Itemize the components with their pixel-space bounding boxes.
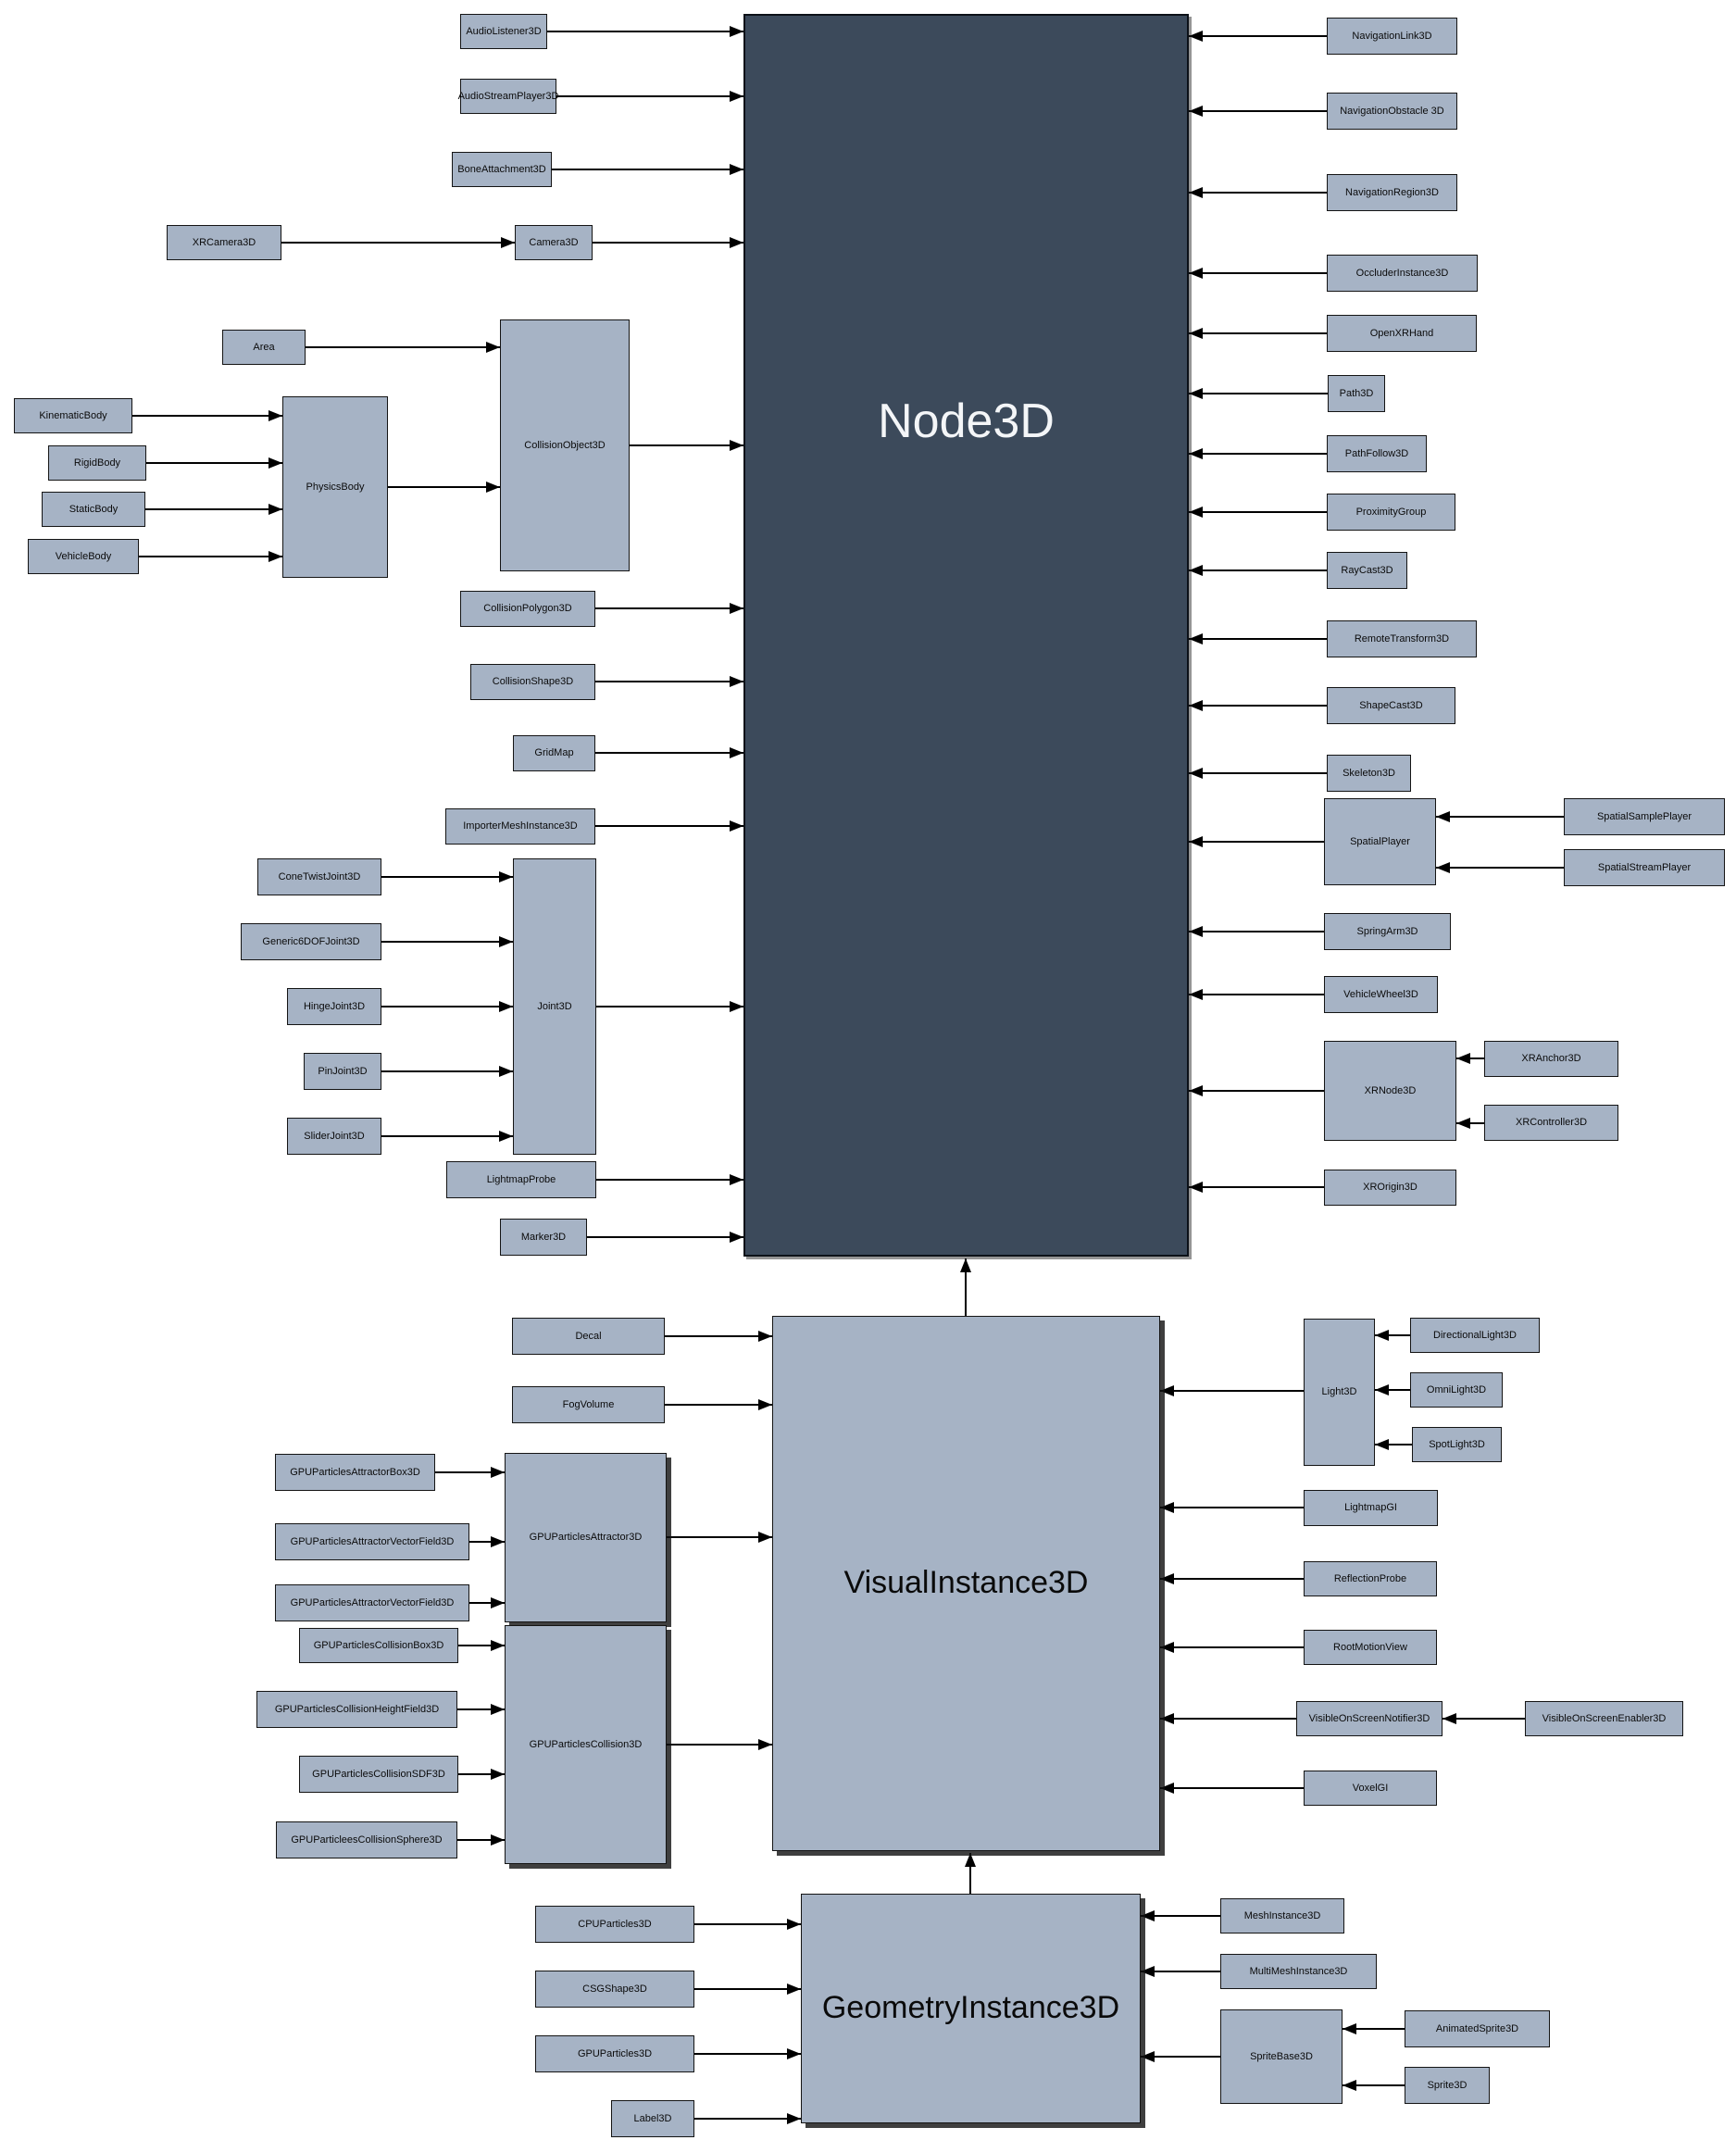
node-physics_body: PhysicsBody bbox=[282, 396, 388, 578]
edge-line bbox=[1160, 1787, 1304, 1789]
node-audio_listener3d: AudioListener3D bbox=[460, 14, 547, 49]
arrowhead-icon bbox=[499, 871, 513, 882]
node-directional_light3d: DirectionalLight3D bbox=[1410, 1318, 1540, 1353]
node-occluder_instance3d: OccluderInstance3D bbox=[1327, 255, 1478, 292]
node-cpu_particles3d: CPUParticles3D bbox=[535, 1906, 694, 1943]
arrowhead-icon bbox=[1189, 989, 1203, 1000]
node-omni_light3d: OmniLight3D bbox=[1410, 1372, 1503, 1408]
node-skeleton3d: Skeleton3D bbox=[1327, 755, 1411, 792]
arrowhead-icon bbox=[1436, 862, 1450, 873]
node-visible_on_screen_notifier3d: VisibleOnScreenNotifier3D bbox=[1296, 1701, 1443, 1736]
node-csg_shape3d: CSGShape3D bbox=[535, 1971, 694, 2008]
node-lightmap_gi: LightmapGI bbox=[1304, 1490, 1438, 1526]
node-root_motion_view: RootMotionView bbox=[1304, 1630, 1437, 1665]
node-sprite3d: Sprite3D bbox=[1405, 2067, 1490, 2104]
edge-line bbox=[596, 1179, 743, 1181]
node-xr_anchor3d: XRAnchor3D bbox=[1484, 1041, 1618, 1077]
arrowhead-icon bbox=[1141, 1966, 1155, 1977]
edge-line bbox=[281, 242, 515, 244]
edge-line bbox=[139, 556, 282, 557]
node-gpu_particles_attractor_vector_field3d_a: GPUParticlesAttractorVectorField3D bbox=[275, 1523, 469, 1560]
edge-line bbox=[556, 95, 743, 97]
node-path3d: Path3D bbox=[1328, 375, 1385, 412]
arrowhead-icon bbox=[1189, 1085, 1203, 1096]
node-audio_stream_player3d: AudioStreamPlayer3D bbox=[460, 79, 556, 114]
node-spatial_player: SpatialPlayer bbox=[1324, 798, 1436, 885]
node-gpu_particlees_collision_sphere3d: GPUParticleesCollisionSphere3D bbox=[276, 1821, 457, 1858]
arrowhead-icon bbox=[491, 1640, 505, 1651]
edge-line bbox=[388, 486, 500, 488]
node-pin_joint3d: PinJoint3D bbox=[304, 1053, 381, 1090]
arrowhead-icon bbox=[486, 342, 500, 353]
arrowhead-icon bbox=[1189, 633, 1203, 645]
node-kinematic_body: KinematicBody bbox=[14, 398, 132, 433]
edge-line bbox=[694, 2053, 801, 2055]
arrowhead-icon bbox=[499, 1001, 513, 1012]
arrowhead-icon bbox=[730, 26, 743, 37]
arrowhead-icon bbox=[730, 1001, 743, 1012]
edge-line bbox=[1160, 1578, 1304, 1580]
node-generic6dof_joint3d: Generic6DOFJoint3D bbox=[241, 923, 381, 960]
edge-line bbox=[1189, 393, 1328, 394]
edge-line bbox=[306, 346, 500, 348]
class-hierarchy-diagram: AudioListener3DAudioStreamPlayer3DBoneAt… bbox=[0, 0, 1736, 2140]
edge-line bbox=[1189, 1186, 1324, 1188]
arrowhead-icon bbox=[1160, 1783, 1174, 1794]
arrowhead-icon bbox=[730, 1174, 743, 1185]
edge-line bbox=[587, 1236, 743, 1238]
arrowhead-icon bbox=[1189, 448, 1203, 459]
edge-line bbox=[1189, 1090, 1324, 1092]
node-spatial_stream_player: SpatialStreamPlayer bbox=[1564, 849, 1725, 886]
edge-line bbox=[1189, 705, 1327, 707]
arrowhead-icon bbox=[730, 676, 743, 687]
edge-line bbox=[1189, 569, 1327, 571]
node-geometry_instance3d: GeometryInstance3D bbox=[801, 1894, 1141, 2123]
node-xr_camera3d: XRCamera3D bbox=[167, 225, 281, 260]
node-gpu_particles_attractor_vector_field3d_b: GPUParticlesAttractorVectorField3D bbox=[275, 1584, 469, 1621]
edge-line bbox=[1189, 841, 1324, 843]
edge-line bbox=[694, 2118, 801, 2120]
edge-line bbox=[1160, 1718, 1296, 1720]
arrowhead-icon bbox=[787, 2113, 801, 2124]
node-visible_on_screen_enabler3d: VisibleOnScreenEnabler3D bbox=[1525, 1701, 1683, 1736]
edge-line bbox=[145, 508, 282, 510]
node-proximity_group: ProximityGroup bbox=[1327, 494, 1455, 531]
arrowhead-icon bbox=[730, 1232, 743, 1243]
node-joint3d: Joint3D bbox=[513, 858, 596, 1155]
edge-line bbox=[381, 1006, 513, 1007]
node-light3d: Light3D bbox=[1304, 1319, 1375, 1466]
node-xr_origin3d: XROrigin3D bbox=[1324, 1170, 1456, 1206]
node-marker3d: Marker3D bbox=[500, 1219, 587, 1256]
edge-line bbox=[1160, 1646, 1304, 1648]
edge-line bbox=[381, 1070, 513, 1072]
node-visual_instance3d: VisualInstance3D bbox=[772, 1316, 1160, 1851]
arrowhead-icon bbox=[787, 1919, 801, 1930]
node-gpu_particles_collision_height_field3d: GPUParticlesCollisionHeightField3D bbox=[256, 1691, 457, 1728]
node-decal: Decal bbox=[512, 1318, 665, 1355]
edge-line bbox=[1436, 867, 1564, 869]
node-rigid_body: RigidBody bbox=[48, 445, 146, 481]
arrowhead-icon bbox=[1375, 1330, 1389, 1341]
arrowhead-icon bbox=[1189, 1182, 1203, 1193]
node-remote_transform3d: RemoteTransform3D bbox=[1327, 620, 1477, 657]
node-hinge_joint3d: HingeJoint3D bbox=[287, 988, 381, 1025]
edge-line bbox=[595, 607, 743, 609]
node-reflection_probe: ReflectionProbe bbox=[1304, 1561, 1437, 1596]
edge-line bbox=[667, 1744, 772, 1746]
edge-line bbox=[595, 752, 743, 754]
arrowhead-icon bbox=[730, 820, 743, 832]
arrowhead-icon bbox=[1189, 268, 1203, 279]
node-navigation_obstacle3d: NavigationObstacle 3D bbox=[1327, 93, 1457, 130]
node-xr_controller3d: XRController3D bbox=[1484, 1105, 1618, 1141]
node-gpu_particles_attractor3d: GPUParticlesAttractor3D bbox=[505, 1453, 667, 1622]
arrowhead-icon bbox=[501, 237, 515, 248]
arrowhead-icon bbox=[1160, 1502, 1174, 1513]
edge-line bbox=[1189, 110, 1327, 112]
edge-line bbox=[694, 1923, 801, 1925]
node-fog_volume: FogVolume bbox=[512, 1386, 665, 1423]
edge-line bbox=[547, 31, 743, 32]
arrowhead-icon bbox=[1189, 388, 1203, 399]
edge-line bbox=[1189, 453, 1327, 455]
arrowhead-icon bbox=[1456, 1118, 1470, 1129]
arrowhead-icon bbox=[269, 410, 282, 421]
edge-line bbox=[1436, 816, 1564, 818]
edge-line bbox=[381, 876, 513, 878]
edge-line bbox=[1189, 35, 1327, 37]
arrowhead-icon bbox=[1160, 1573, 1174, 1584]
edge-line bbox=[667, 1536, 772, 1538]
node-mesh_instance3d: MeshInstance3D bbox=[1220, 1898, 1344, 1934]
node-path_follow3d: PathFollow3D bbox=[1327, 435, 1427, 472]
arrowhead-icon bbox=[1189, 700, 1203, 711]
edge-line bbox=[1189, 192, 1327, 194]
edge-line bbox=[593, 242, 743, 244]
node-collision_polygon3d: CollisionPolygon3D bbox=[460, 591, 595, 627]
node-grid_map: GridMap bbox=[513, 735, 595, 771]
edge-line bbox=[1189, 332, 1327, 334]
arrowhead-icon bbox=[1456, 1053, 1470, 1064]
node-slider_joint3d: SliderJoint3D bbox=[287, 1118, 381, 1155]
arrowhead-icon bbox=[1141, 1910, 1155, 1921]
node-multi_mesh_instance3d: MultiMeshInstance3D bbox=[1220, 1954, 1377, 1989]
edge-line bbox=[1189, 772, 1327, 774]
node-static_body: StaticBody bbox=[42, 492, 145, 527]
arrowhead-icon bbox=[1189, 926, 1203, 937]
node-gpu_particles_collision3d: GPUParticlesCollision3D bbox=[505, 1625, 667, 1864]
node-collision_shape3d: CollisionShape3D bbox=[470, 664, 595, 700]
node-gpu_particles_attractor_box3d: GPUParticlesAttractorBox3D bbox=[275, 1454, 435, 1491]
node-vehicle_wheel3d: VehicleWheel3D bbox=[1324, 976, 1438, 1013]
arrowhead-icon bbox=[269, 504, 282, 515]
arrowhead-icon bbox=[1189, 768, 1203, 779]
edge-line bbox=[630, 444, 743, 446]
edge-line bbox=[1189, 272, 1327, 274]
arrowhead-icon bbox=[730, 603, 743, 614]
arrowhead-icon bbox=[1189, 187, 1203, 198]
node-gpu_particles_collision_sdf3d: GPUParticlesCollisionSDF3D bbox=[299, 1756, 458, 1793]
arrowhead-icon bbox=[491, 1536, 505, 1547]
arrowhead-icon bbox=[499, 936, 513, 947]
node-gpu_particles_collision_box3d: GPUParticlesCollisionBox3D bbox=[299, 1628, 458, 1663]
node-ray_cast3d: RayCast3D bbox=[1327, 552, 1407, 589]
arrowhead-icon bbox=[758, 1399, 772, 1410]
arrowhead-icon bbox=[1141, 2051, 1155, 2062]
node-spatial_sample_player: SpatialSamplePlayer bbox=[1564, 798, 1725, 835]
arrowhead-icon bbox=[269, 551, 282, 562]
edge-line bbox=[1189, 931, 1324, 932]
node-spot_light3d: SpotLight3D bbox=[1412, 1427, 1502, 1462]
arrowhead-icon bbox=[965, 1853, 976, 1867]
arrowhead-icon bbox=[758, 1331, 772, 1342]
node-open_xr_hand: OpenXRHand bbox=[1327, 315, 1477, 352]
arrowhead-icon bbox=[1343, 2080, 1356, 2091]
arrowhead-icon bbox=[1189, 565, 1203, 576]
node-navigation_link3d: NavigationLink3D bbox=[1327, 18, 1457, 55]
arrowhead-icon bbox=[1375, 1384, 1389, 1395]
edge-line bbox=[595, 681, 743, 682]
arrowhead-icon bbox=[491, 1769, 505, 1780]
arrowhead-icon bbox=[491, 1467, 505, 1478]
edge-line bbox=[146, 462, 282, 464]
edge-line bbox=[381, 1135, 513, 1137]
arrowhead-icon bbox=[960, 1258, 971, 1272]
arrowhead-icon bbox=[787, 2048, 801, 2059]
arrowhead-icon bbox=[758, 1532, 772, 1543]
node-bone_attachment3d: BoneAttachment3D bbox=[452, 152, 552, 187]
edge-line bbox=[1160, 1390, 1304, 1392]
node-label3d: Label3D bbox=[611, 2100, 694, 2137]
node-vehicle_body: VehicleBody bbox=[28, 539, 139, 574]
arrowhead-icon bbox=[1436, 811, 1450, 822]
arrowhead-icon bbox=[1375, 1439, 1389, 1450]
arrowhead-icon bbox=[1189, 31, 1203, 42]
node-lightmap_probe: LightmapProbe bbox=[446, 1161, 596, 1198]
node-importer_mesh_instance3d: ImporterMeshInstance3D bbox=[445, 808, 595, 845]
edge-line bbox=[552, 169, 743, 170]
arrowhead-icon bbox=[491, 1704, 505, 1715]
arrowhead-icon bbox=[491, 1834, 505, 1846]
edge-line bbox=[665, 1335, 772, 1337]
arrowhead-icon bbox=[269, 457, 282, 469]
node-node3d: Node3D bbox=[743, 14, 1189, 1257]
edge-line bbox=[132, 415, 282, 417]
node-cone_twist_joint3d: ConeTwistJoint3D bbox=[257, 858, 381, 895]
arrowhead-icon bbox=[730, 164, 743, 175]
arrowhead-icon bbox=[499, 1066, 513, 1077]
arrowhead-icon bbox=[758, 1739, 772, 1750]
arrowhead-icon bbox=[730, 91, 743, 102]
arrowhead-icon bbox=[491, 1597, 505, 1608]
arrowhead-icon bbox=[730, 237, 743, 248]
node-camera3d: Camera3D bbox=[515, 225, 593, 260]
node-navigation_region3d: NavigationRegion3D bbox=[1327, 174, 1457, 211]
edge-line bbox=[694, 1988, 801, 1990]
arrowhead-icon bbox=[1160, 1713, 1174, 1724]
arrowhead-icon bbox=[1343, 2023, 1356, 2034]
arrowhead-icon bbox=[1160, 1385, 1174, 1396]
arrowhead-icon bbox=[787, 1984, 801, 1995]
arrowhead-icon bbox=[1189, 836, 1203, 847]
node-collision_object3d: CollisionObject3D bbox=[500, 319, 630, 571]
arrowhead-icon bbox=[1443, 1713, 1456, 1724]
arrowhead-icon bbox=[1189, 507, 1203, 518]
edge-line bbox=[1160, 1507, 1304, 1508]
edge-line bbox=[1189, 994, 1324, 995]
node-spring_arm3d: SpringArm3D bbox=[1324, 913, 1451, 950]
edge-line bbox=[1189, 511, 1327, 513]
node-shape_cast3d: ShapeCast3D bbox=[1327, 687, 1455, 724]
edge-line bbox=[595, 825, 743, 827]
edge-line bbox=[381, 941, 513, 943]
node-xr_node3d: XRNode3D bbox=[1324, 1041, 1456, 1141]
arrowhead-icon bbox=[730, 747, 743, 758]
arrowhead-icon bbox=[1189, 328, 1203, 339]
arrowhead-icon bbox=[730, 440, 743, 451]
arrowhead-icon bbox=[1160, 1642, 1174, 1653]
node-area: Area bbox=[222, 330, 306, 365]
edge-line bbox=[596, 1006, 743, 1007]
edge-line bbox=[665, 1404, 772, 1406]
arrowhead-icon bbox=[499, 1131, 513, 1142]
node-voxel_gi: VoxelGI bbox=[1304, 1771, 1437, 1806]
node-animated_sprite3d: AnimatedSprite3D bbox=[1405, 2010, 1550, 2047]
edge-line bbox=[1189, 638, 1327, 640]
node-sprite_base3d: SpriteBase3D bbox=[1220, 2009, 1343, 2104]
node-gpu_particles3d: GPUParticles3D bbox=[535, 2035, 694, 2072]
arrowhead-icon bbox=[486, 482, 500, 493]
arrowhead-icon bbox=[1189, 106, 1203, 117]
